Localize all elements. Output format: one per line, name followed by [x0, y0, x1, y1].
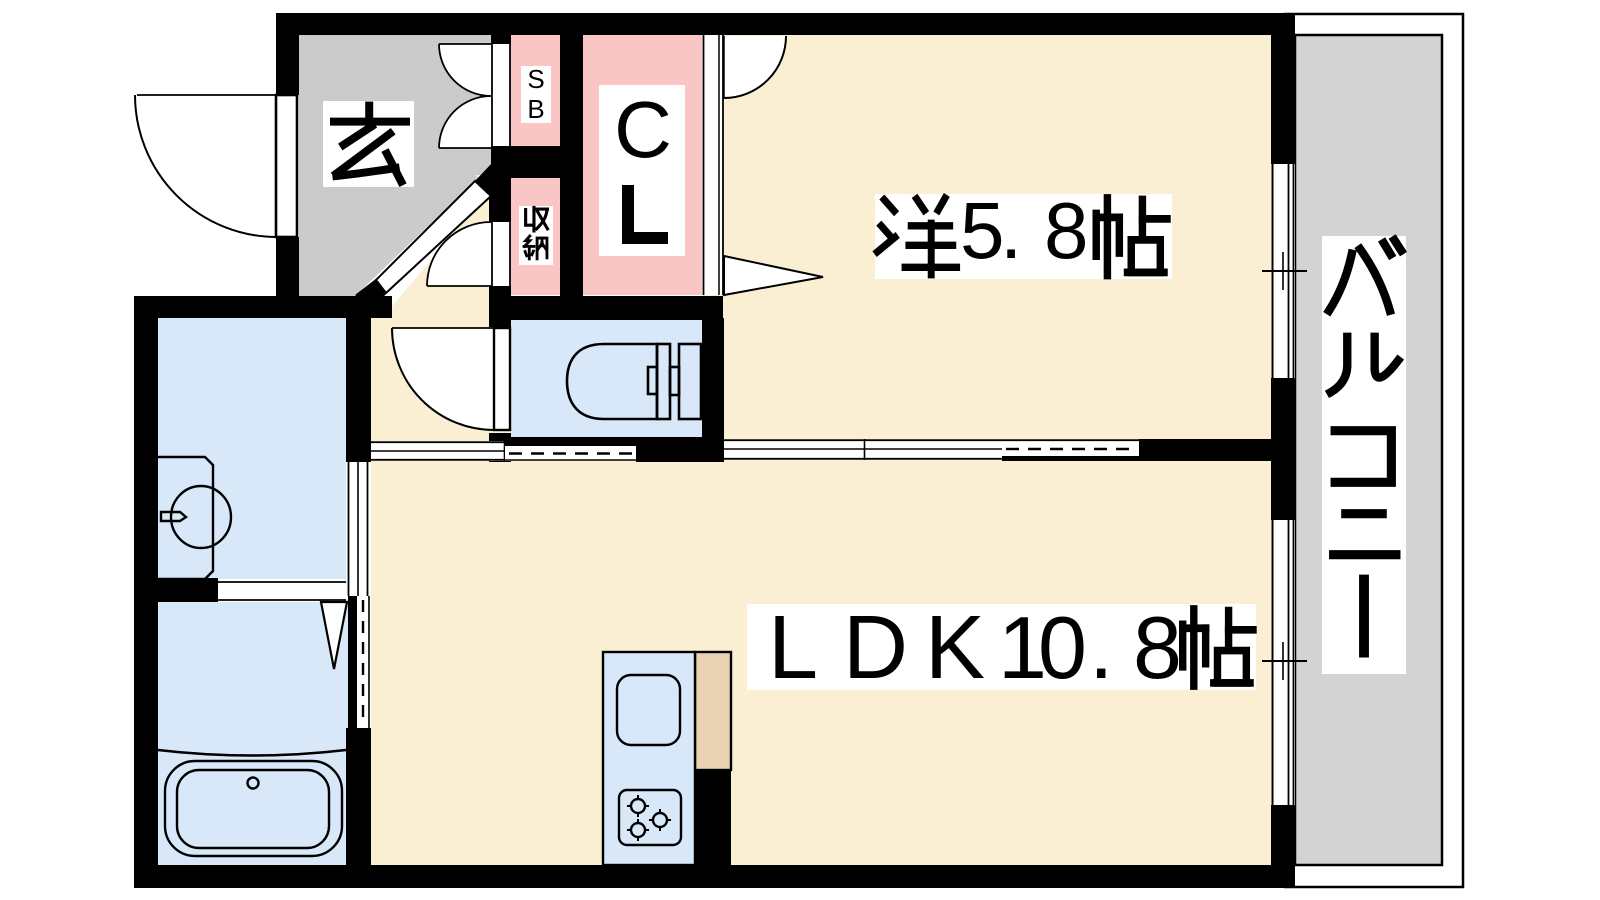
svg-text:10.8: 10.8	[998, 598, 1182, 697]
svg-text:S: S	[527, 64, 544, 94]
svg-text:C: C	[614, 85, 672, 174]
svg-text:LDK: LDK	[768, 598, 985, 698]
svg-text:B: B	[527, 94, 544, 124]
